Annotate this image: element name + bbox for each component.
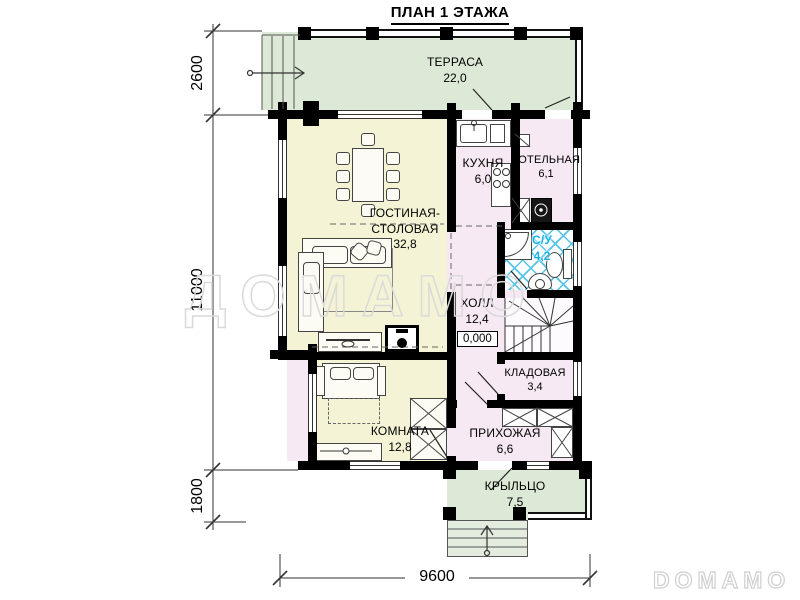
chair: [386, 152, 400, 165]
wall-bedroom-hall-a: [447, 360, 456, 428]
fireplace: [385, 325, 419, 352]
bed-sofa-armrest: [377, 366, 386, 396]
chair: [336, 170, 350, 183]
kitchen-sink: [460, 124, 487, 143]
window: [573, 242, 582, 286]
plan-title: ПЛАН 1 ЭТАЖА: [391, 4, 510, 25]
dining-table: [352, 148, 384, 202]
dim-porch-depth: 1800: [189, 466, 209, 526]
terrace-post: [514, 27, 527, 40]
window: [350, 461, 400, 470]
terrace-post: [298, 27, 311, 40]
sofa-cushion: [353, 367, 374, 380]
washing-machine: [531, 198, 552, 223]
chair: [361, 133, 375, 146]
window: [338, 110, 422, 119]
stairs-area: [505, 298, 573, 352]
dim-house-depth: 11000: [189, 260, 209, 320]
label-hallway: ПРИХОЖАЯ6,6: [455, 426, 555, 457]
wall-hallway-top-a: [447, 400, 457, 408]
label-hall: ХОЛЛ12,4: [452, 296, 502, 327]
label-porch: КРЫЛЬЦО7,5: [475, 479, 555, 510]
watermark-corner: DOMAMO: [653, 567, 790, 594]
wall-hallway-top-b: [487, 400, 582, 408]
door-opening-boiler-terrace: [545, 110, 571, 119]
kitchen-cabinet: [490, 124, 505, 143]
terrace-post: [366, 27, 379, 40]
porch-post: [443, 507, 456, 520]
label-living: ГОСТИНАЯ-СТОЛОВАЯ32,8: [363, 206, 447, 253]
wall-stairs-bottom: [497, 352, 582, 360]
wall-bath-left: [497, 222, 505, 298]
sofa-cushion: [303, 262, 320, 294]
door-opening-kitchen-terrace: [462, 110, 492, 119]
toilet-tank: [563, 249, 572, 279]
wardrobe: [537, 408, 573, 427]
dim-terrace-depth: 2600: [189, 43, 209, 103]
tv-stand: [318, 332, 382, 352]
label-kitchen: КУХНЯ6,0: [453, 156, 513, 187]
bed-sofa-armrest: [316, 366, 325, 396]
door-opening-porch: [478, 461, 512, 470]
plan-title-wrap: ПЛАН 1 ЭТАЖА: [350, 4, 550, 25]
bed-pullout: [328, 398, 380, 424]
elevation-mark: 0,000: [457, 331, 498, 347]
label-boiler: КОТЕЛЬНАЯ6,1: [507, 153, 585, 182]
window: [308, 374, 317, 432]
floor-plan: ПЛАН 1 ЭТАЖА: [0, 0, 800, 600]
porch-steps: [447, 520, 528, 557]
chair: [336, 152, 350, 165]
bath-sink: [528, 273, 552, 290]
chair: [386, 188, 400, 201]
porch-post: [579, 466, 592, 479]
wall-bath-top: [511, 222, 582, 230]
wardrobe: [502, 408, 537, 427]
wall-storage-left-a: [497, 360, 505, 364]
label-terrace: ТЕРРАСА22,0: [415, 55, 495, 86]
wall-living-bedroom: [278, 352, 447, 360]
terrace-railing-top: [300, 29, 576, 38]
terrace-post: [570, 27, 583, 40]
wall-bath-bottom-b: [527, 290, 582, 298]
porch-post: [443, 466, 456, 479]
sofa-cushion: [330, 367, 351, 380]
label-bedroom: КОМНАТА12,8: [350, 424, 450, 455]
chair: [336, 188, 350, 201]
label-storage: КЛАДОВАЯ3,4: [495, 366, 575, 395]
terrace-post: [303, 101, 319, 126]
label-bathroom: С/У4,2: [520, 233, 564, 264]
chair: [386, 170, 400, 183]
terrace-post: [440, 27, 453, 40]
terrace-railing-right: [575, 29, 583, 110]
window: [278, 266, 287, 336]
window: [278, 140, 287, 198]
porch-railing-bottom: [528, 512, 592, 520]
window: [527, 461, 549, 470]
dim-total-width: 9600: [405, 568, 469, 586]
